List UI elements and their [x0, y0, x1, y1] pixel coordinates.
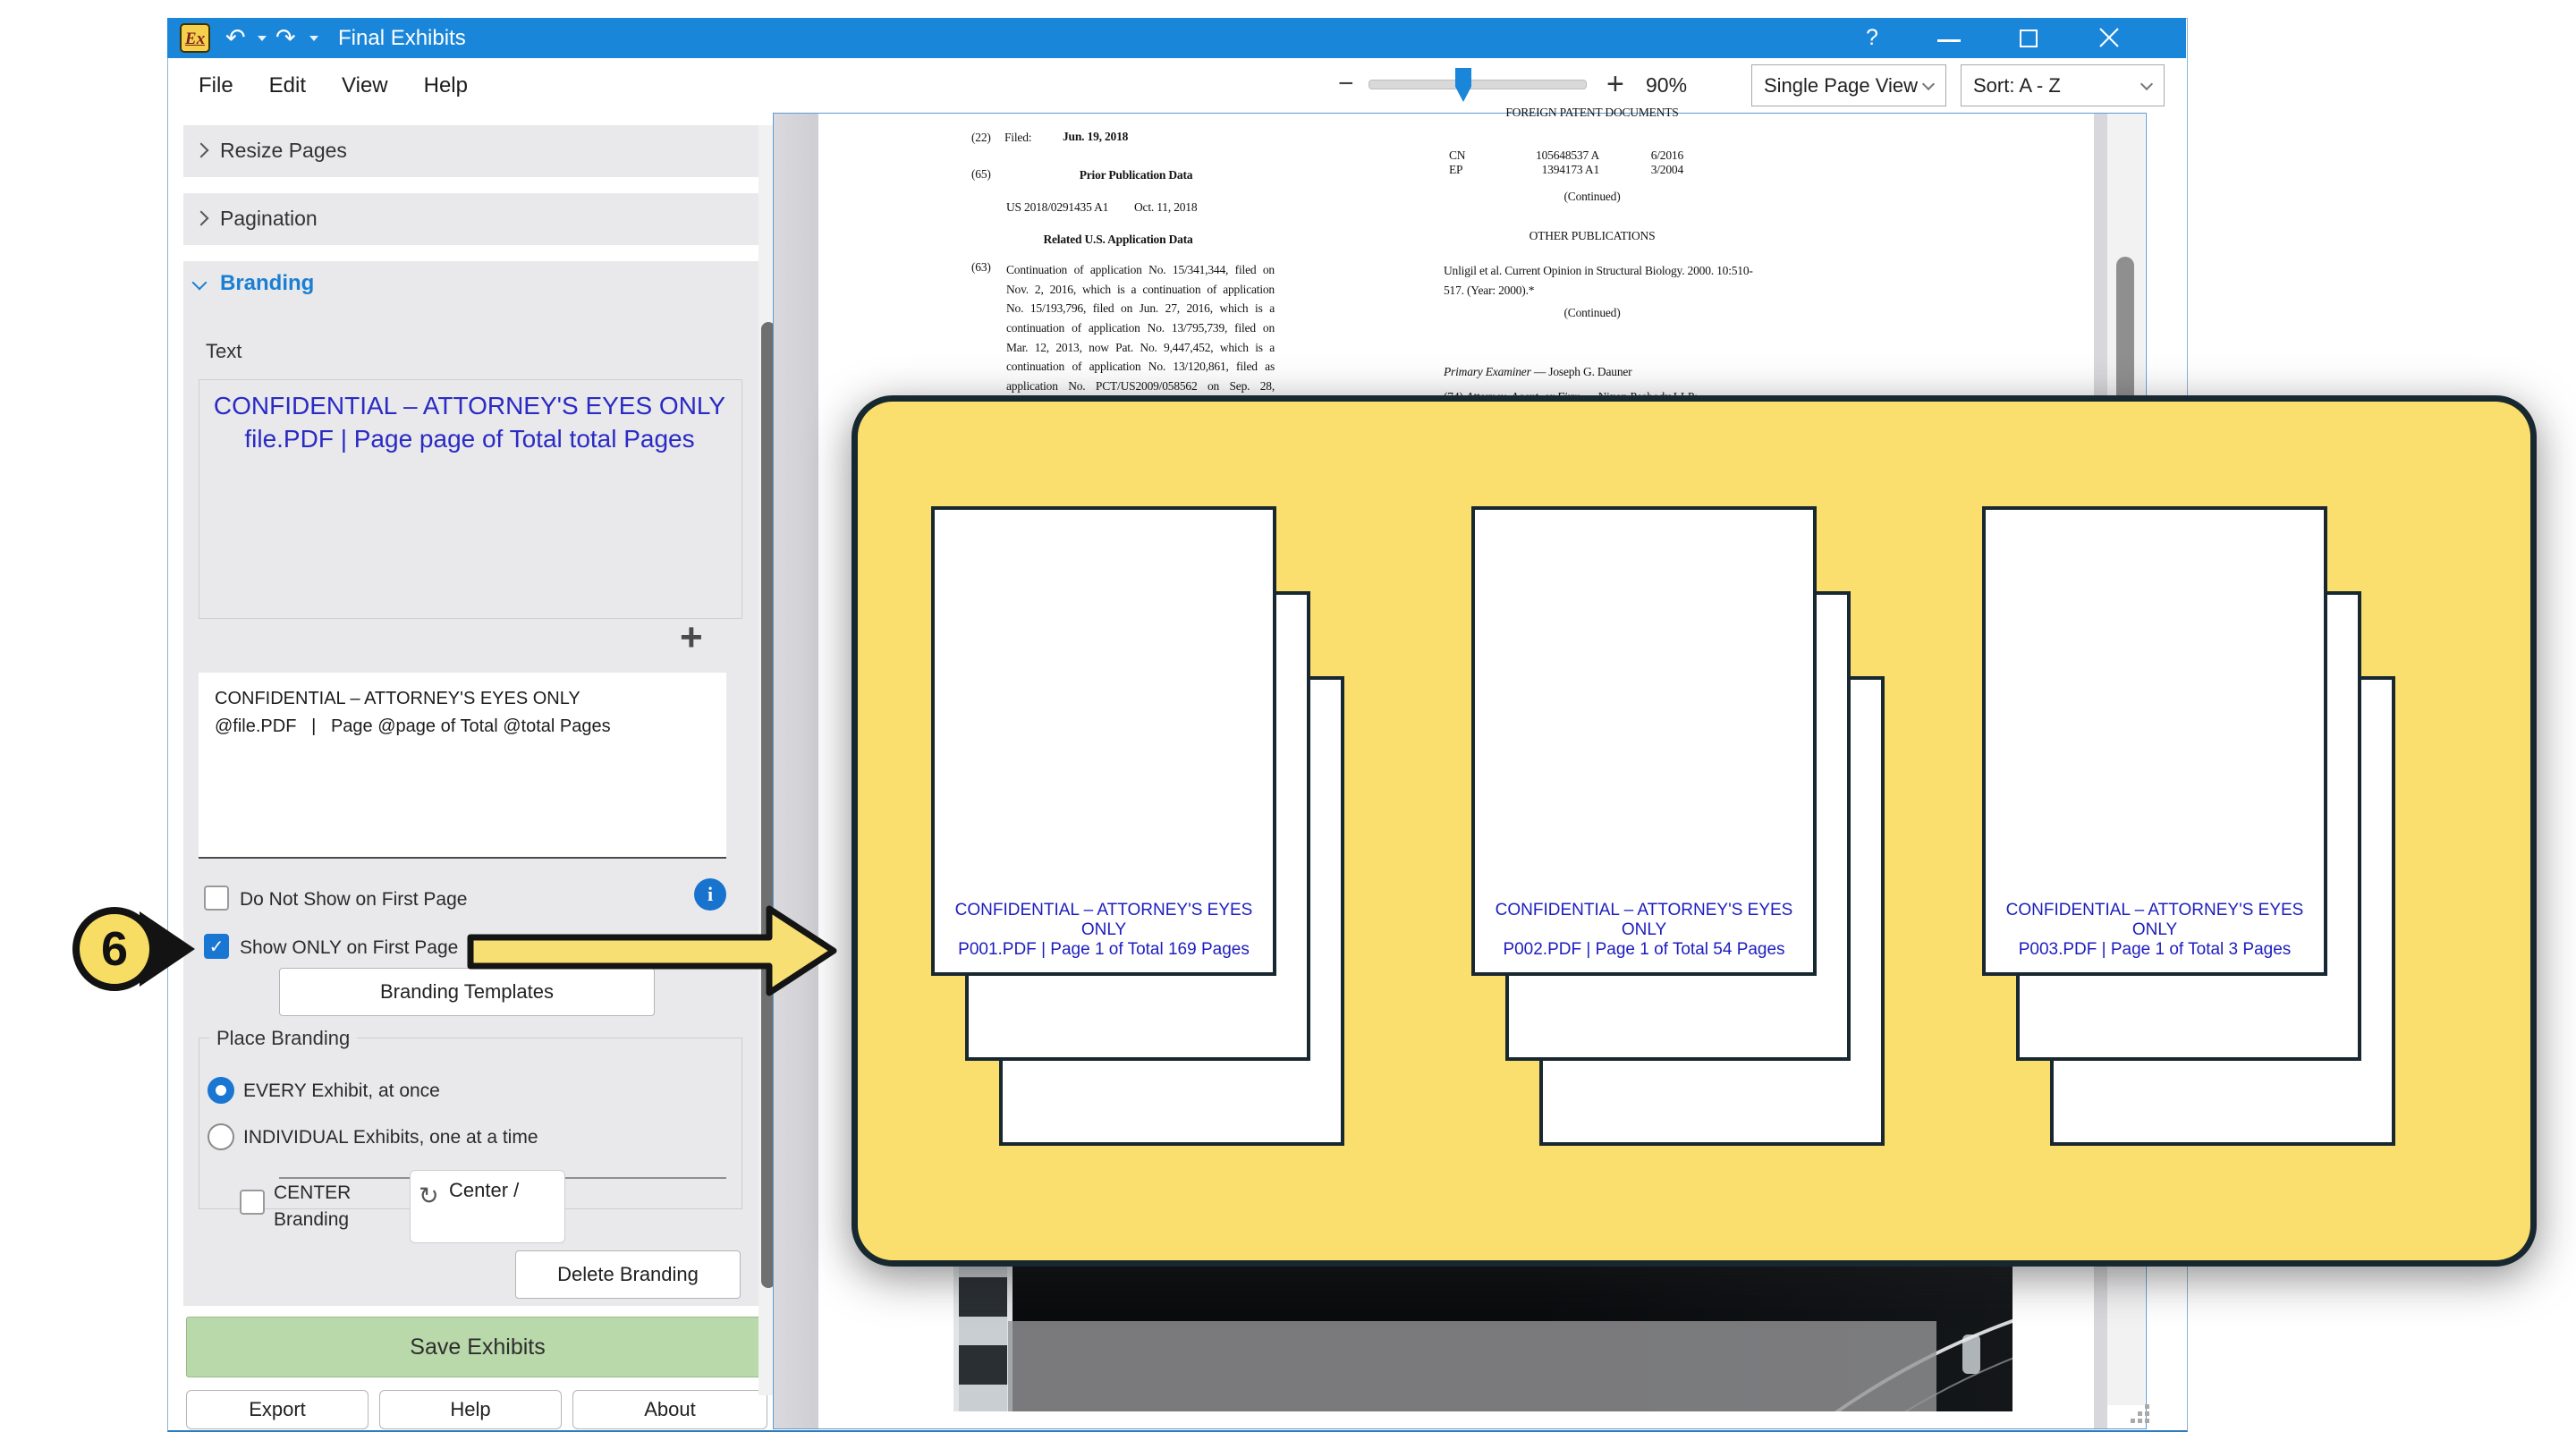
zoom-level-label: 90% [1646, 58, 1687, 113]
delete-branding-button[interactable]: Delete Branding [515, 1250, 741, 1299]
about-button[interactable]: About [572, 1390, 767, 1429]
patent-text-line: Nov. 2, 2016, which is a continuation of… [1006, 280, 1275, 300]
exhibit-page-front: CONFIDENTIAL – ATTORNEY'S EYES ONLY P002… [1471, 506, 1817, 976]
patent-other-pubs-header: OTHER PUBLICATIONS [1494, 229, 1690, 243]
caption-line2: P001.PDF | Page 1 of Total 169 Pages [935, 940, 1273, 960]
branding-preview-line1: CONFIDENTIAL – ATTORNEY'S EYES ONLY [199, 392, 741, 420]
exhibit-page-front: CONFIDENTIAL – ATTORNEY'S EYES ONLY P001… [931, 506, 1276, 976]
show-only-first-page-label: Show ONLY on First Page [240, 937, 458, 959]
patent-foreign-header: FOREIGN PATENT DOCUMENTS [1494, 106, 1690, 120]
chevron-right-icon [194, 143, 209, 158]
every-exhibit-radio[interactable] [208, 1077, 234, 1104]
do-not-show-label: Do Not Show on First Page [240, 889, 467, 911]
patent-number: 105648537 A [1494, 148, 1599, 163]
refresh-icon: ↻ [419, 1182, 439, 1210]
redo-dropdown-icon[interactable] [309, 36, 318, 41]
resize-grip[interactable] [2131, 1419, 2135, 1423]
chevron-right-icon [194, 211, 209, 226]
save-exhibits-button[interactable]: Save Exhibits [186, 1317, 769, 1377]
sort-order-value: Sort: A - Z [1973, 74, 2061, 97]
examiner-label: Primary Examiner [1444, 365, 1531, 378]
individual-exhibits-radio[interactable] [208, 1123, 234, 1150]
sidebar-section-pagination[interactable]: Pagination [183, 193, 761, 245]
caption-line2: P002.PDF | Page 1 of Total 54 Pages [1475, 940, 1813, 960]
patent-pub-date: Oct. 11, 2018 [1134, 200, 1197, 215]
exhibit-preview-stack: CONFIDENTIAL – ATTORNEY'S EYES ONLY P003… [1982, 506, 2399, 1150]
exhibit-branding-caption: CONFIDENTIAL – ATTORNEY'S EYES ONLY P003… [1986, 901, 2324, 960]
patent-text-line: application No. PCT/US2009/058562 on Sep… [1006, 377, 1275, 396]
examiner-value: — Joseph G. Dauner [1531, 365, 1632, 378]
text-group-label: Text [206, 340, 241, 363]
patent-field-ref: (65) [971, 167, 991, 182]
menu-items: FileEditViewHelp [188, 58, 468, 113]
patent-continuation-paragraph: Continuation of application No. 15/341,3… [1006, 260, 1275, 396]
app-icon: Ex [180, 23, 210, 53]
exhibit-preview-stack: CONFIDENTIAL – ATTORNEY'S EYES ONLY P001… [931, 506, 1348, 1150]
patent-filed-label: Filed: [1004, 131, 1031, 145]
every-exhibit-label: EVERY Exhibit, at once [243, 1080, 440, 1102]
titlebar-help-button[interactable]: ? [1859, 18, 1885, 58]
export-button[interactable]: Export [186, 1390, 369, 1429]
caption-line1: CONFIDENTIAL – ATTORNEY'S EYES ONLY [935, 901, 1273, 940]
center-branding-checkbox[interactable] [240, 1190, 265, 1215]
patent-citation-line1: Unligil et al. Current Opinion in Struct… [1444, 264, 1753, 278]
section-label: Resize Pages [220, 139, 347, 163]
page-margin-left [774, 114, 818, 1428]
menu-item[interactable]: Edit [269, 73, 306, 98]
patent-text-line: Mar. 12, 2013, now Pat. No. 9,447,452, w… [1006, 338, 1275, 358]
redo-icon[interactable]: ↷ [275, 18, 296, 58]
patent-figure-image [953, 1249, 2012, 1411]
caption-line1: CONFIDENTIAL – ATTORNEY'S EYES ONLY [1986, 901, 2324, 940]
patent-date: 3/2004 [1621, 163, 1683, 177]
figure-selection-overlay [1008, 1321, 1936, 1411]
patent-text-line: continuation of application No. 13/795,7… [1006, 318, 1275, 338]
patent-foreign-table: CN 105648537 A 6/2016 EP 1394173 A1 3/20… [1449, 148, 1717, 177]
patent-filed-date: Jun. 19, 2018 [1063, 130, 1128, 144]
patent-field-ref: (63) [971, 260, 991, 275]
zoom-out-button[interactable]: − [1338, 58, 1354, 110]
country-code: CN [1449, 148, 1494, 163]
sidebar-section-branding[interactable]: Branding [220, 271, 314, 296]
branding-result-callout: CONFIDENTIAL – ATTORNEY'S EYES ONLY P001… [852, 395, 2537, 1267]
patent-citation-line2: 517. (Year: 2000).* [1444, 284, 1534, 298]
sort-order-select[interactable]: Sort: A - Z [1961, 64, 2165, 106]
menu-item[interactable]: View [342, 73, 388, 98]
center-branding-label-line1: CENTER [274, 1182, 351, 1204]
patent-field-ref: (22) [971, 131, 991, 145]
menu-item[interactable]: Help [424, 73, 468, 98]
caption-line1: CONFIDENTIAL – ATTORNEY'S EYES ONLY [1475, 901, 1813, 940]
individual-exhibits-label: INDIVIDUAL Exhibits, one at a time [243, 1127, 538, 1148]
close-button[interactable] [2098, 27, 2120, 48]
foreign-patent-row: CN 105648537 A 6/2016 [1449, 148, 1717, 163]
help-button[interactable]: Help [379, 1390, 562, 1429]
minimize-button[interactable] [1937, 39, 1961, 42]
exhibit-preview-stack: CONFIDENTIAL – ATTORNEY'S EYES ONLY P002… [1471, 506, 1888, 1150]
step-badge: 6 [72, 907, 157, 991]
patent-date: 6/2016 [1621, 148, 1683, 163]
patent-text-line: Continuation of application No. 15/341,3… [1006, 260, 1275, 280]
patent-pub-header: Prior Publication Data [1029, 168, 1243, 182]
patent-continued-note: (Continued) [1521, 190, 1664, 204]
figure-highlight [1962, 1335, 1980, 1374]
screenshot-stage: Ex ↶ ↷ Final Exhibits ? FileEditViewHelp… [0, 0, 2576, 1449]
place-branding-label: Place Branding [209, 1027, 357, 1050]
branding-preview-line2: file.PDF | Page page of Total total Page… [199, 425, 741, 453]
callout-arrow [445, 902, 846, 1005]
sidebar-section-resize-pages[interactable]: Resize Pages [183, 125, 761, 177]
film-strip-graphic [953, 1249, 1013, 1411]
view-mode-value: Single Page View [1764, 74, 1918, 97]
section-label: Pagination [220, 207, 318, 231]
zoom-slider-track[interactable] [1368, 80, 1587, 89]
caption-line2: P003.PDF | Page 1 of Total 3 Pages [1986, 940, 2324, 960]
exhibit-branding-caption: CONFIDENTIAL – ATTORNEY'S EYES ONLY P002… [1475, 901, 1813, 960]
undo-icon[interactable]: ↶ [225, 18, 246, 58]
patent-text-line: continuation of application No. 13/120,8… [1006, 357, 1275, 377]
exhibit-branding-caption: CONFIDENTIAL – ATTORNEY'S EYES ONLY P001… [935, 901, 1273, 960]
zoom-in-button[interactable]: + [1606, 58, 1624, 110]
maximize-button[interactable] [2020, 30, 2038, 47]
chevron-down-icon [1922, 78, 1935, 90]
patent-pub-number: US 2018/0291435 A1 [1006, 200, 1108, 215]
check-icon: ✓ [209, 937, 225, 957]
patent-number: 1394173 A1 [1494, 163, 1599, 177]
window-title: Final Exhibits [338, 18, 466, 58]
exhibit-page-front: CONFIDENTIAL – ATTORNEY'S EYES ONLY P003… [1982, 506, 2327, 976]
patent-related-header: Related U.S. Application Data [1006, 233, 1230, 247]
patent-examiner-line: Primary Examiner — Joseph G. Dauner [1444, 365, 1631, 379]
foreign-patent-row: EP 1394173 A1 3/2004 [1449, 163, 1717, 177]
patent-text-line: No. 15/193,796, filed on Jun. 27, 2016, … [1006, 299, 1275, 318]
add-branding-button[interactable]: + [680, 615, 703, 660]
show-only-first-page-checkbox[interactable]: ✓ [204, 934, 229, 959]
view-mode-select[interactable]: Single Page View [1751, 64, 1946, 106]
menu-item[interactable]: File [199, 73, 233, 98]
center-branding-label-line2: Branding [274, 1209, 349, 1231]
do-not-show-checkbox[interactable] [204, 885, 229, 911]
undo-dropdown-icon[interactable] [258, 36, 267, 41]
chevron-down-icon [2140, 78, 2153, 90]
branding-template-input[interactable]: CONFIDENTIAL – ATTORNEY'S EYES ONLY @fil… [199, 673, 726, 859]
country-code: EP [1449, 163, 1494, 177]
patent-continued-note: (Continued) [1521, 306, 1664, 320]
center-position-value: Center / [449, 1179, 519, 1202]
